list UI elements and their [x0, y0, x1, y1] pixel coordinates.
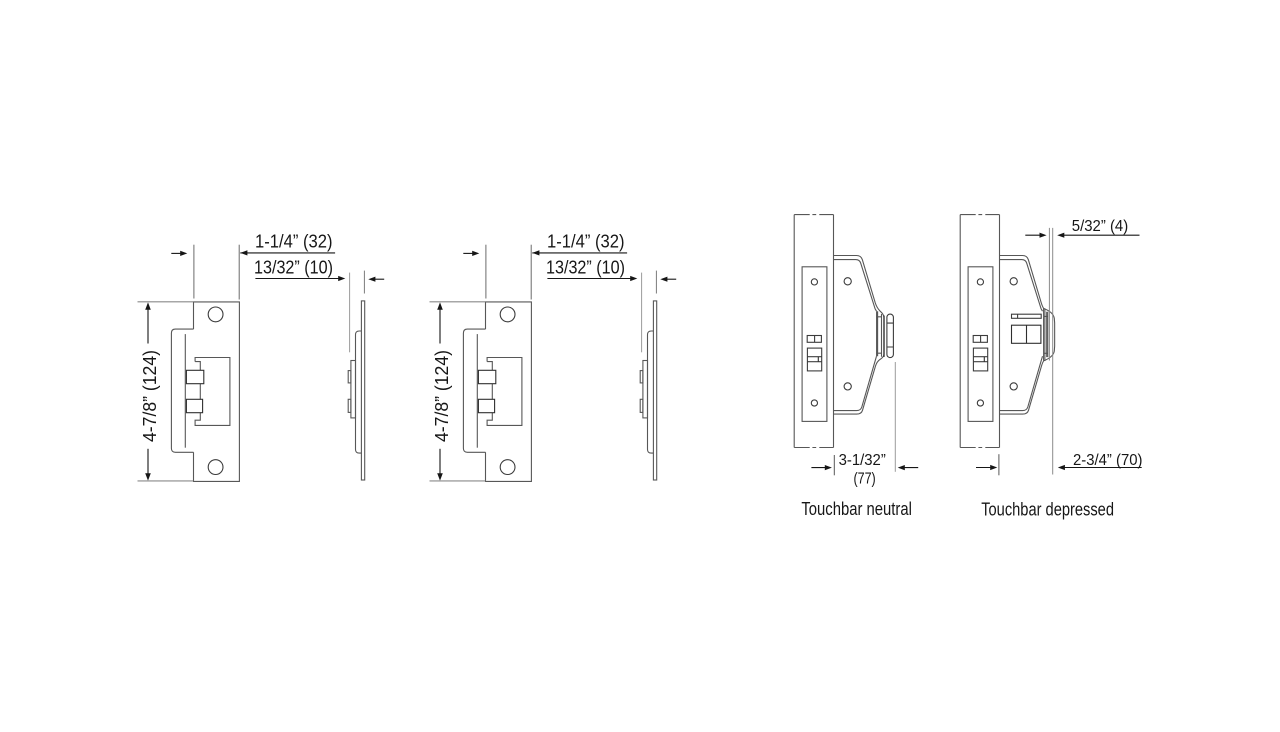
svg-text:Touchbar depressed: Touchbar depressed [981, 500, 1114, 520]
svg-text:5/32” (4): 5/32” (4) [1072, 218, 1128, 235]
svg-text:2-3/4” (70): 2-3/4” (70) [1073, 452, 1143, 469]
svg-text:3-1/32”: 3-1/32” [839, 452, 886, 469]
svg-text:(77): (77) [853, 470, 875, 487]
svg-text:Touchbar neutral: Touchbar neutral [801, 499, 912, 519]
